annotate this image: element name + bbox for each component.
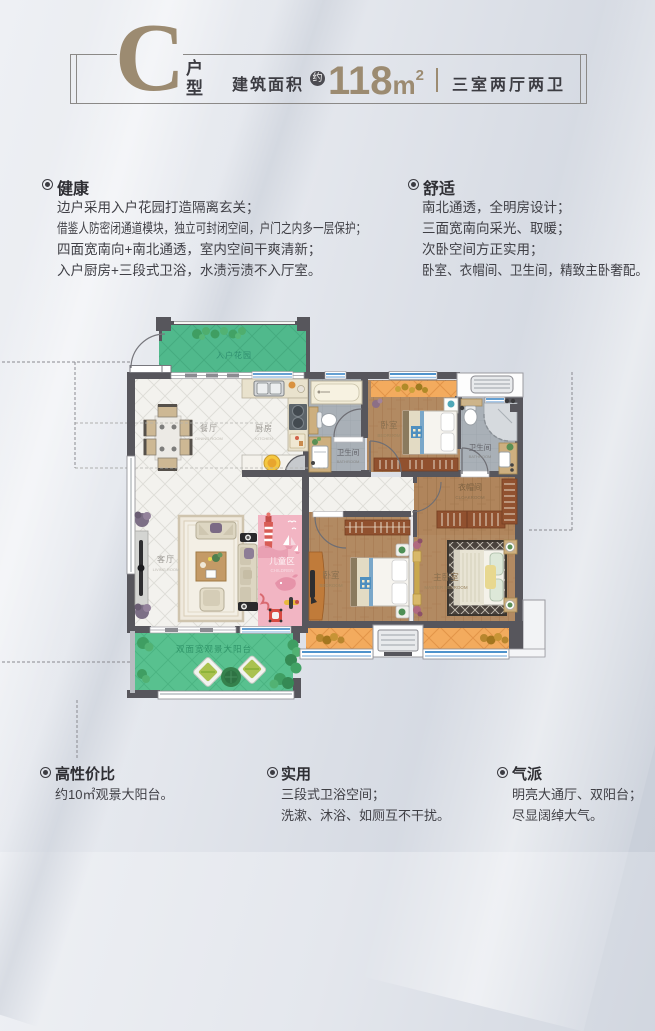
svg-text:卫生间: 卫生间 xyxy=(469,442,492,452)
svg-text:BEDROOM: BEDROOM xyxy=(319,583,343,588)
svg-text:主卧室: 主卧室 xyxy=(433,572,459,582)
svg-text:BATHROOM: BATHROOM xyxy=(469,454,492,459)
svg-text:衣帽间: 衣帽间 xyxy=(458,482,482,492)
svg-text:CLOAKROOM: CLOAKROOM xyxy=(455,495,485,500)
svg-text:CHILDREN: CHILDREN xyxy=(270,568,293,573)
svg-text:餐厅: 餐厅 xyxy=(200,424,218,433)
svg-text:双面宽观景大阳台: 双面宽观景大阳台 xyxy=(176,644,252,654)
svg-text:DINING ROOM: DINING ROOM xyxy=(195,436,223,441)
svg-text:MASTER BEDROOM: MASTER BEDROOM xyxy=(424,585,468,590)
svg-text:KITCHEN: KITCHEN xyxy=(255,436,273,441)
svg-text:卧室: 卧室 xyxy=(380,420,398,430)
svg-text:入户花园: 入户花园 xyxy=(216,350,252,360)
svg-text:卫生间: 卫生间 xyxy=(337,447,360,457)
svg-text:儿童区: 儿童区 xyxy=(269,556,295,566)
svg-text:LIVING ROOM: LIVING ROOM xyxy=(153,567,180,572)
svg-text:厨房: 厨房 xyxy=(255,423,273,433)
svg-text:BATHROOM: BATHROOM xyxy=(337,459,360,464)
svg-text:BEDROOM: BEDROOM xyxy=(377,433,401,438)
svg-text:卧室: 卧室 xyxy=(322,570,340,580)
svg-text:客厅: 客厅 xyxy=(157,554,175,564)
